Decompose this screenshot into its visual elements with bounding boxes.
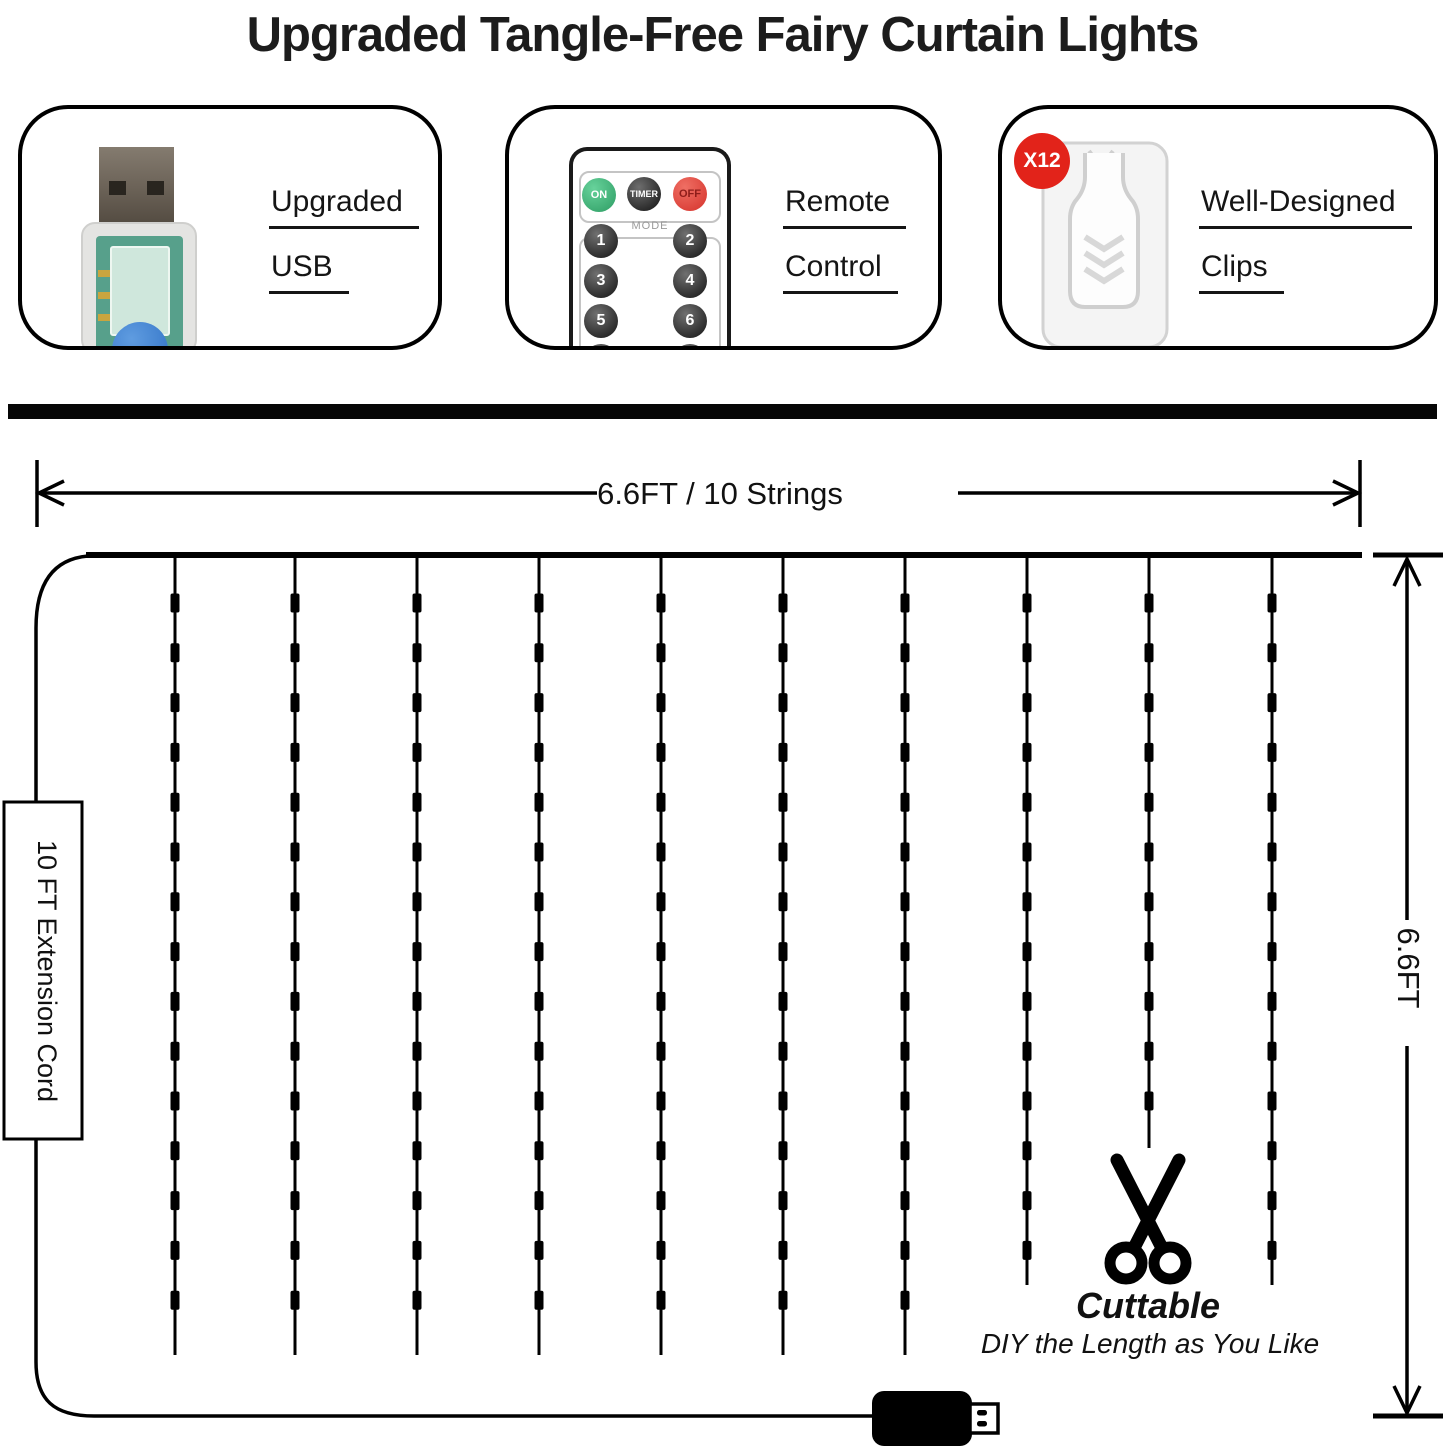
led-light [413, 843, 422, 862]
led-light [779, 1042, 788, 1061]
led-light [291, 1141, 300, 1160]
led-light [413, 1191, 422, 1210]
led-light [901, 643, 910, 662]
led-light [413, 892, 422, 911]
usb-connector [99, 147, 174, 223]
led-light [657, 1092, 666, 1111]
led-light [901, 843, 910, 862]
led-light [779, 1092, 788, 1111]
feature-line: Upgraded [269, 185, 419, 229]
led-light [1268, 992, 1277, 1011]
led-light [291, 843, 300, 862]
led-light [413, 942, 422, 961]
usb-plug-icon [872, 1391, 998, 1446]
led-light [1023, 693, 1032, 712]
remote-mode-button-1: 1 [584, 224, 618, 258]
led-light [1268, 594, 1277, 613]
led-light [901, 1092, 910, 1111]
led-light [1145, 1042, 1154, 1061]
led-light [535, 643, 544, 662]
remote-timer-button: TIMER [627, 177, 661, 211]
led-light [1023, 1241, 1032, 1260]
led-light [657, 643, 666, 662]
remote-on-button: ON [582, 178, 616, 212]
led-light [1268, 843, 1277, 862]
led-light [1145, 843, 1154, 862]
feature-card-clips: X12 Well-Designed Clips [998, 105, 1438, 350]
feature-line: Well-Designed [1199, 185, 1412, 229]
led-light [1268, 892, 1277, 911]
led-light [535, 1092, 544, 1111]
led-light [901, 693, 910, 712]
led-light [171, 1092, 180, 1111]
product-infographic: Upgraded Tangle-Free Fairy Curtain Light… [0, 0, 1445, 1449]
led-light [901, 594, 910, 613]
remote-mode-button-3: 3 [584, 264, 618, 298]
led-light [171, 843, 180, 862]
led-light [413, 793, 422, 812]
led-light [291, 793, 300, 812]
led-light [779, 992, 788, 1011]
led-light [779, 693, 788, 712]
extension-cord-lower [36, 1137, 874, 1416]
led-light [413, 1291, 422, 1310]
led-light [1023, 1141, 1032, 1160]
led-light [779, 793, 788, 812]
led-light [657, 1042, 666, 1061]
quantity-badge: X12 [1014, 133, 1070, 189]
led-light [413, 992, 422, 1011]
led-light [413, 1241, 422, 1260]
led-light [1023, 594, 1032, 613]
led-light [1145, 743, 1154, 762]
led-light [901, 743, 910, 762]
led-light [901, 992, 910, 1011]
led-light [1268, 643, 1277, 662]
led-light [779, 743, 788, 762]
led-light [291, 693, 300, 712]
led-light [171, 1241, 180, 1260]
led-light [1145, 594, 1154, 613]
led-light [291, 643, 300, 662]
led-light [1268, 942, 1277, 961]
led-light [779, 843, 788, 862]
led-light [1023, 992, 1032, 1011]
led-light [1145, 793, 1154, 812]
led-light [1145, 693, 1154, 712]
led-light [1145, 643, 1154, 662]
led-light [171, 1291, 180, 1310]
usb-connector-hole [109, 181, 126, 195]
led-light [901, 942, 910, 961]
led-light [1268, 743, 1277, 762]
cord-label: 10 FT Extension Cord [32, 840, 62, 1102]
led-light [535, 892, 544, 911]
led-light [291, 1291, 300, 1310]
led-light [901, 1291, 910, 1310]
led-light [535, 793, 544, 812]
led-light [657, 892, 666, 911]
cuttable-title: Cuttable [1076, 1285, 1220, 1326]
led-light [901, 1241, 910, 1260]
page-title: Upgraded Tangle-Free Fairy Curtain Light… [0, 0, 1445, 70]
led-light [1145, 992, 1154, 1011]
led-light [291, 594, 300, 613]
led-light [657, 693, 666, 712]
led-light [171, 1141, 180, 1160]
remote-mode-button-6: 6 [673, 304, 707, 338]
led-light [901, 793, 910, 812]
led-light [1023, 942, 1032, 961]
feature-line: USB [269, 250, 349, 294]
led-light [1145, 1092, 1154, 1111]
led-light [657, 793, 666, 812]
led-light [1023, 743, 1032, 762]
feature-label-remote: Remote Control [783, 185, 906, 315]
led-light [1023, 1042, 1032, 1061]
divider-bar [8, 404, 1437, 419]
led-light [1268, 1191, 1277, 1210]
remote-off-button: OFF [673, 177, 707, 211]
height-dimension-label: 6.6FT [1391, 928, 1426, 1009]
remote-control-image: ON TIMER OFF MODE 12345678 [569, 147, 731, 350]
led-light [779, 1241, 788, 1260]
led-light [1023, 1092, 1032, 1111]
led-light [1023, 843, 1032, 862]
led-light [535, 693, 544, 712]
led-light [901, 1141, 910, 1160]
remote-mode-button-2: 2 [673, 224, 707, 258]
led-light [291, 992, 300, 1011]
led-light [1145, 942, 1154, 961]
led-light [1023, 1191, 1032, 1210]
led-light [171, 942, 180, 961]
light-strings [171, 557, 1277, 1355]
led-light [413, 693, 422, 712]
led-light [1268, 793, 1277, 812]
led-light [171, 1191, 180, 1210]
usb-connector-hole [147, 181, 164, 195]
led-light [171, 1042, 180, 1061]
led-light [535, 942, 544, 961]
led-light [171, 892, 180, 911]
usb-plug-image [82, 147, 232, 350]
led-light [535, 992, 544, 1011]
feature-line: Remote [783, 185, 906, 229]
remote-mode-button-5: 5 [584, 304, 618, 338]
led-light [413, 643, 422, 662]
led-light [657, 843, 666, 862]
led-light [1023, 892, 1032, 911]
led-light [901, 892, 910, 911]
led-light [413, 743, 422, 762]
led-light [779, 1191, 788, 1210]
led-light [171, 693, 180, 712]
feature-line: Control [783, 250, 898, 294]
led-light [535, 1291, 544, 1310]
led-light [171, 643, 180, 662]
feature-card-usb: Upgraded USB [18, 105, 442, 350]
led-light [535, 1191, 544, 1210]
led-light [413, 1042, 422, 1061]
led-light [535, 1241, 544, 1260]
led-light [657, 594, 666, 613]
led-light [535, 743, 544, 762]
led-light [1268, 1092, 1277, 1111]
remote-mode-button-4: 4 [673, 264, 707, 298]
led-light [779, 1141, 788, 1160]
led-light [1268, 1141, 1277, 1160]
led-light [413, 1092, 422, 1111]
led-light [657, 942, 666, 961]
width-dimension-label: 6.6FT / 10 Strings [597, 476, 843, 511]
feature-label-usb: Upgraded USB [269, 185, 419, 315]
led-light [291, 1092, 300, 1111]
led-light [901, 1042, 910, 1061]
led-light [779, 594, 788, 613]
led-light [1023, 793, 1032, 812]
led-light [291, 892, 300, 911]
led-light [171, 594, 180, 613]
led-light [413, 594, 422, 613]
led-light [291, 1042, 300, 1061]
led-light [657, 743, 666, 762]
led-light [779, 643, 788, 662]
led-light [535, 594, 544, 613]
led-light [657, 992, 666, 1011]
led-light [657, 1191, 666, 1210]
curtain-diagram: 6.6FT / 10 Strings 10 FT Extension Cord … [0, 440, 1445, 1449]
led-light [657, 1141, 666, 1160]
extension-cord-upper [36, 556, 88, 804]
led-light [1268, 693, 1277, 712]
led-light [1268, 1042, 1277, 1061]
led-light [291, 743, 300, 762]
led-light [779, 892, 788, 911]
led-light [291, 1191, 300, 1210]
led-light [535, 1141, 544, 1160]
cuttable-subtitle: DIY the Length as You Like [981, 1328, 1319, 1359]
led-light [657, 1241, 666, 1260]
led-light [1268, 1241, 1277, 1260]
led-light [1023, 643, 1032, 662]
led-light [413, 1141, 422, 1160]
led-light [779, 942, 788, 961]
led-light [779, 1291, 788, 1310]
led-light [901, 1191, 910, 1210]
feature-label-clips: Well-Designed Clips [1199, 185, 1412, 315]
led-light [1145, 892, 1154, 911]
feature-card-remote: ON TIMER OFF MODE 12345678 Remote Contro… [505, 105, 942, 350]
led-light [291, 1241, 300, 1260]
scissors-icon [1110, 1160, 1186, 1279]
led-light [657, 1291, 666, 1310]
led-light [171, 992, 180, 1011]
led-light [171, 793, 180, 812]
usb-body [81, 222, 197, 350]
led-light [171, 743, 180, 762]
led-light [291, 942, 300, 961]
led-light [535, 843, 544, 862]
feature-line: Clips [1199, 250, 1284, 294]
led-light [535, 1042, 544, 1061]
